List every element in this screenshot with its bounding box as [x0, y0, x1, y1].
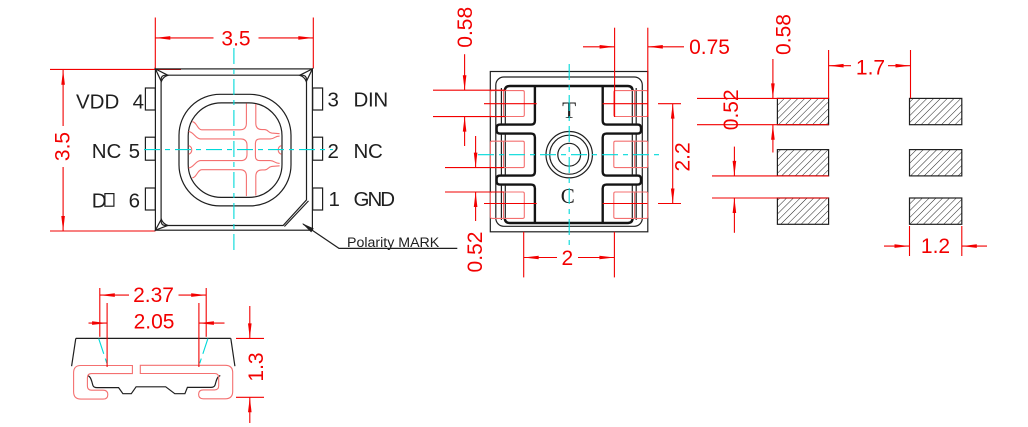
svg-text:VDD: VDD — [76, 90, 119, 113]
svg-text:2.05: 2.05 — [134, 311, 175, 334]
svg-text:1.3: 1.3 — [245, 352, 268, 381]
svg-text:4: 4 — [133, 90, 144, 113]
svg-text:2.37: 2.37 — [133, 284, 174, 307]
svg-text:NC: NC — [92, 140, 122, 163]
svg-text:5: 5 — [129, 140, 140, 163]
svg-text:0.75: 0.75 — [689, 36, 730, 59]
svg-text:3.5: 3.5 — [221, 28, 250, 51]
svg-text:3: 3 — [328, 88, 339, 111]
svg-text:0.58: 0.58 — [454, 7, 477, 48]
svg-text:D: D — [92, 190, 107, 213]
svg-text:2: 2 — [562, 247, 574, 270]
svg-text:C: C — [561, 184, 575, 208]
svg-text:0.52: 0.52 — [464, 232, 487, 273]
svg-text:GND: GND — [354, 188, 395, 211]
svg-text:1.7: 1.7 — [856, 57, 885, 80]
svg-text:6: 6 — [129, 190, 140, 213]
svg-text:1.2: 1.2 — [921, 235, 950, 258]
svg-text:2.2: 2.2 — [672, 142, 695, 171]
svg-text:1: 1 — [329, 188, 340, 211]
svg-text:2: 2 — [328, 140, 339, 163]
svg-text:0.52: 0.52 — [720, 89, 743, 130]
svg-text:3.5: 3.5 — [52, 132, 75, 161]
svg-text:Polarity MARK: Polarity MARK — [347, 235, 440, 251]
svg-text:0.58: 0.58 — [773, 14, 796, 55]
svg-text:NC: NC — [354, 140, 384, 163]
svg-text:DIN: DIN — [354, 88, 388, 111]
